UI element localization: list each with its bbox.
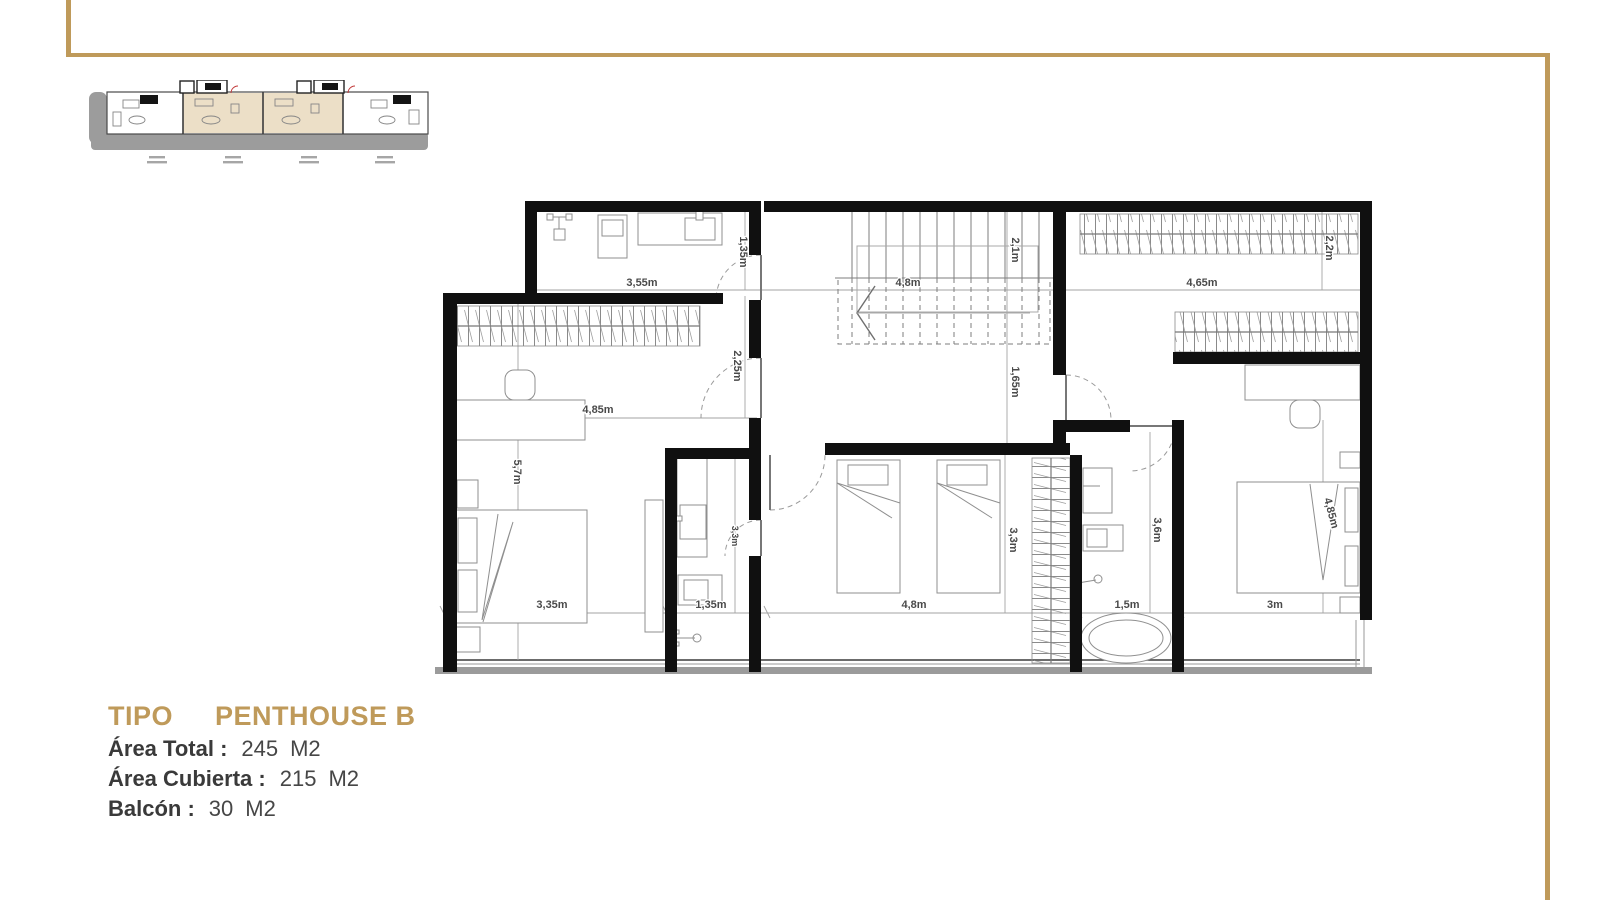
double-bed-icon [1237, 452, 1360, 613]
dim-label: 4,8m [895, 277, 920, 289]
dim-label: 4,65m [1186, 277, 1217, 289]
vanity-icon [1083, 468, 1112, 513]
sink-counter-icon [638, 209, 722, 245]
dim-label: 5,7m [511, 459, 523, 484]
desk-icon [447, 370, 585, 440]
area-cubierta-unit: M2 [328, 766, 359, 791]
washer-icon [598, 215, 627, 258]
dim-label: 1,35m [695, 599, 726, 611]
balcon-value: 30 [209, 796, 233, 821]
dim-label: 2,25m [731, 350, 743, 381]
mini-plan [85, 80, 430, 170]
area-total-label: Área Total : [108, 736, 227, 761]
dim-label: 4,85m [582, 404, 613, 416]
dresser-icon [645, 500, 663, 632]
bathtub-icon [1081, 613, 1171, 663]
toilet-icon [673, 457, 707, 557]
door-arc [1066, 375, 1111, 420]
dim-label: 1,5m [1114, 599, 1139, 611]
tipo-label: TIPO [108, 701, 173, 731]
mini-stair-core [393, 95, 411, 104]
unit-title: TIPOPENTHOUSE B [108, 700, 416, 733]
pendant-light-icon [547, 214, 572, 240]
desk-icon [1245, 365, 1360, 428]
balcon-row: Balcón :30M2 [108, 796, 416, 823]
dim-label: 4,8m [901, 599, 926, 611]
page-frame-left [66, 0, 71, 57]
mini-stair-core [140, 95, 158, 104]
toilet-icon [1083, 525, 1123, 551]
page-frame-top [66, 53, 1550, 57]
area-total-value: 245 [241, 736, 278, 761]
stairs-icon [835, 212, 1053, 344]
tipo-value: PENTHOUSE B [215, 701, 416, 731]
balcon-unit: M2 [245, 796, 276, 821]
dim-label: 3,6m [1151, 517, 1163, 542]
area-cubierta-row: Área Cubierta :215M2 [108, 766, 416, 793]
mini-unit-labels [147, 156, 395, 163]
dim-label: 3,3m [730, 526, 740, 547]
dim-label: 1,35m [737, 236, 749, 267]
area-total-row: Área Total :245M2 [108, 736, 416, 763]
mini-roof-bumps [180, 80, 344, 93]
area-total-unit: M2 [290, 736, 321, 761]
dim-label: 3,3m [1007, 527, 1019, 552]
shower-faucet-icon [674, 630, 701, 646]
dim-label: 3,35m [536, 599, 567, 611]
single-bed-icon [837, 460, 900, 593]
single-bed-icon [937, 460, 1000, 593]
floor-plan: 3,55m 4,8m 4,65m 1,35m 2,1m 2,2m 2,25m 1… [430, 186, 1375, 691]
double-bed-icon [455, 480, 587, 652]
dim-label: 3m [1267, 599, 1283, 611]
balcony-window [435, 620, 1372, 674]
dimension-labels: 3,55m 4,8m 4,65m 1,35m 2,1m 2,2m 2,25m 1… [511, 235, 1341, 611]
page-frame-right [1545, 53, 1550, 900]
door-arc [1130, 426, 1175, 471]
mini-building [107, 92, 428, 134]
dim-label: 1,65m [1009, 366, 1021, 397]
unit-info-block: TIPOPENTHOUSE B Área Total :245M2 Área C… [108, 700, 416, 822]
dim-label: 2,1m [1009, 237, 1021, 262]
area-cubierta-label: Área Cubierta : [108, 766, 266, 791]
balcon-label: Balcón : [108, 796, 195, 821]
door-arc [770, 455, 825, 510]
door-arc [701, 358, 761, 418]
dim-label: 3,55m [626, 277, 657, 289]
dim-label: 2,2m [1323, 235, 1335, 260]
area-cubierta-value: 215 [280, 766, 317, 791]
